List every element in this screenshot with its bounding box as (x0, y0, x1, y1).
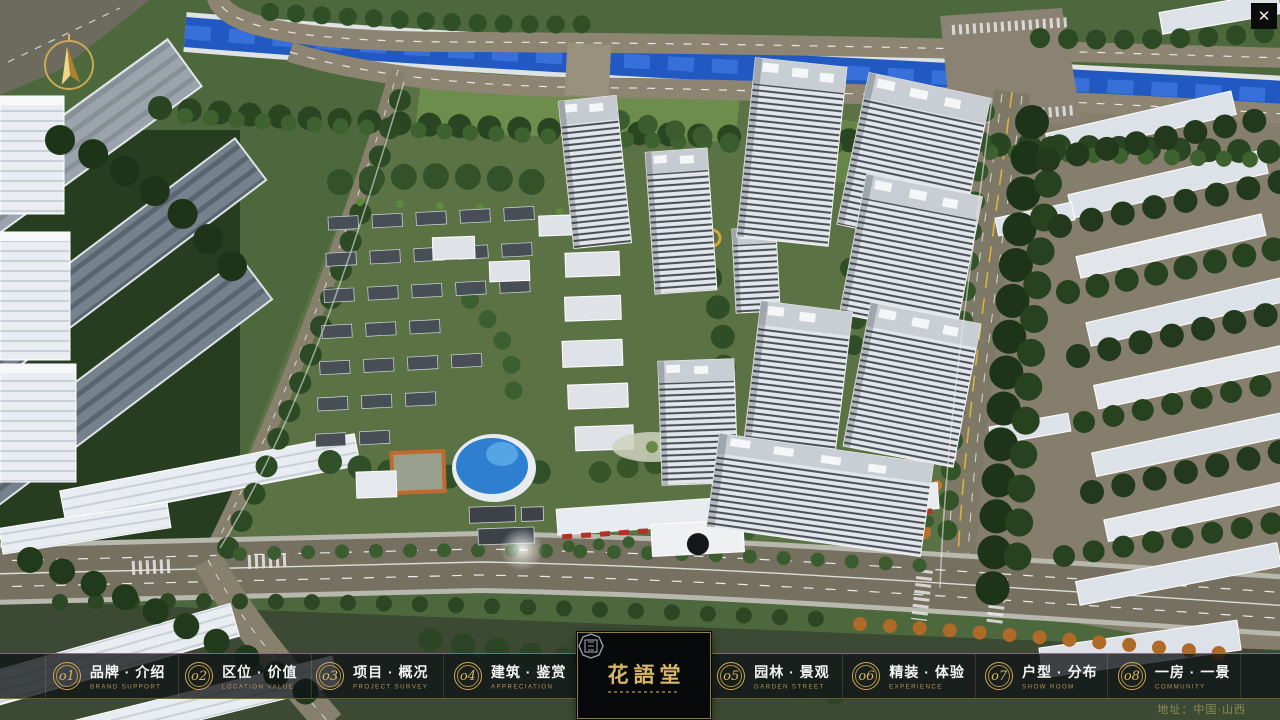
logo-subtitle-rule (608, 691, 680, 693)
compass-icon (40, 36, 98, 94)
menu-number-badge: o7 (985, 662, 1013, 690)
menu-number-badge: o8 (1118, 662, 1146, 690)
close-button[interactable]: ✕ (1251, 3, 1277, 29)
seal-emblem-icon (578, 633, 604, 659)
menu-item-architecture[interactable]: o4 建筑 · 鉴赏APPRECIATION (443, 654, 577, 698)
menu-label-zh: 品牌 · 介绍 (90, 662, 165, 682)
menu-label-zh: 建筑 · 鉴赏 (491, 662, 566, 682)
menu-number-badge: o6 (852, 662, 880, 690)
menu-label-zh: 户型 · 分布 (1022, 662, 1097, 682)
project-address: 地址：中国·山西 (1157, 701, 1246, 717)
menu-number-badge: o3 (316, 662, 344, 690)
menu-item-brand-intro[interactable]: o1 品牌 · 介绍BRAND SUPPORT (45, 654, 178, 698)
menu-group-right: o5 园林 · 景观GARDEN STREET o6 精装 · 体验EXPERI… (709, 654, 1241, 698)
sales-presentation-window: ✕ o1 品牌 · 介绍BRAND SUPPORT o2 区位 · 价值LOCA… (0, 0, 1280, 720)
menu-label-zh: 项目 · 概况 (353, 662, 428, 682)
menu-label-en: PROJECT SURVEY (353, 684, 428, 690)
masterplan-3d-view[interactable] (0, 0, 1280, 720)
close-icon: ✕ (1258, 9, 1271, 24)
menu-item-location-value[interactable]: o2 区位 · 价值LOCATION VALUE (178, 654, 311, 698)
menu-item-project-survey[interactable]: o3 项目 · 概况PROJECT SURVEY (311, 654, 444, 698)
menu-label-en: BRAND SUPPORT (90, 684, 161, 690)
menu-number-badge: o4 (454, 662, 482, 690)
menu-label-zh: 一房 · 一景 (1155, 662, 1230, 682)
menu-group-left: o1 品牌 · 介绍BRAND SUPPORT o2 区位 · 价值LOCATI… (45, 654, 577, 698)
menu-number-badge: o2 (185, 662, 213, 690)
project-logo-title: 花語堂 (603, 659, 686, 689)
menu-label-en: LOCATION VALUE (222, 684, 294, 690)
menu-label-en: GARDEN STREET (754, 684, 825, 690)
menu-label-en: COMMUNITY (1155, 684, 1206, 690)
menu-item-unit-distribution[interactable]: o7 户型 · 分布SHOW ROOM (975, 654, 1108, 698)
menu-number-badge: o1 (53, 662, 81, 690)
menu-label-en: APPRECIATION (491, 684, 553, 690)
menu-item-garden-landscape[interactable]: o5 园林 · 景观GARDEN STREET (709, 654, 842, 698)
project-logo-placard[interactable]: 花語堂 (577, 632, 711, 719)
menu-item-room-view[interactable]: o8 一房 · 一景COMMUNITY (1107, 654, 1241, 698)
menu-label-en: EXPERIENCE (889, 684, 943, 690)
menu-label-zh: 区位 · 价值 (222, 662, 297, 682)
menu-label-zh: 园林 · 景观 (754, 662, 829, 682)
menu-label-zh: 精装 · 体验 (889, 662, 964, 682)
menu-label-en: SHOW ROOM (1022, 684, 1075, 690)
menu-item-interior-experience[interactable]: o6 精装 · 体验EXPERIENCE (842, 654, 975, 698)
menu-number-badge: o5 (717, 662, 745, 690)
